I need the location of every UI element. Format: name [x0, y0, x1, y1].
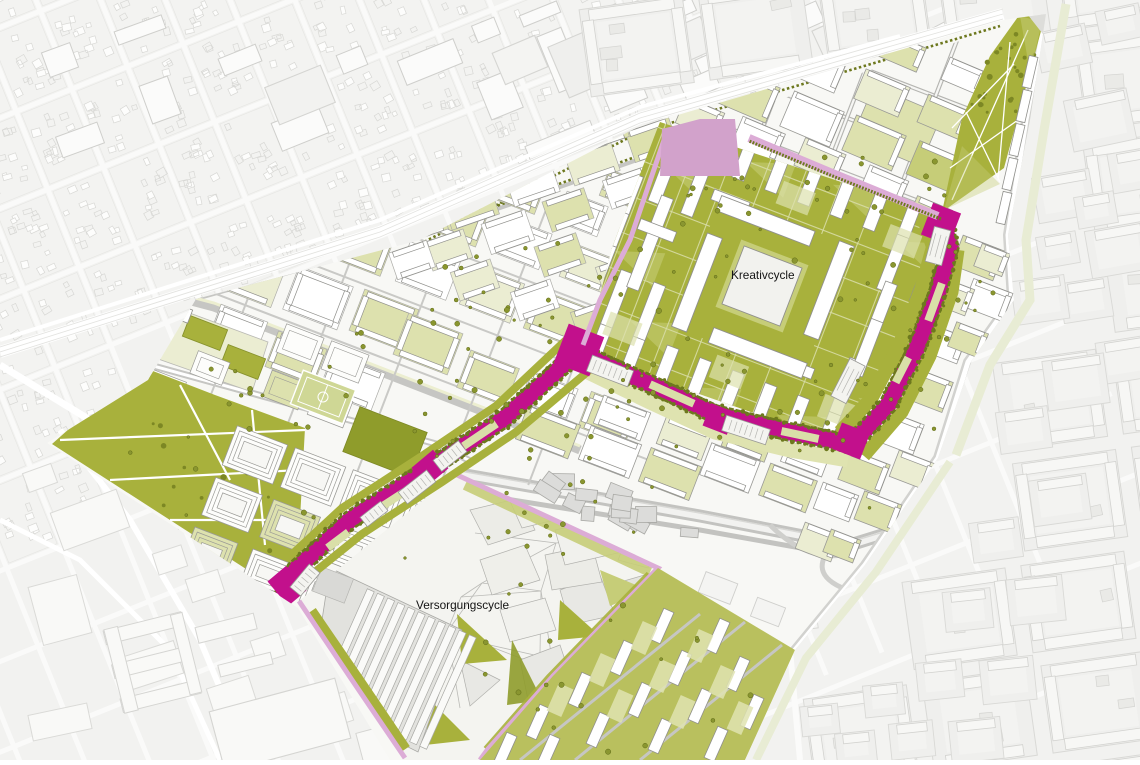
svg-text:Versorgungscycle: Versorgungscycle [416, 598, 510, 612]
svg-text:Kreativcycle: Kreativcycle [731, 268, 795, 282]
